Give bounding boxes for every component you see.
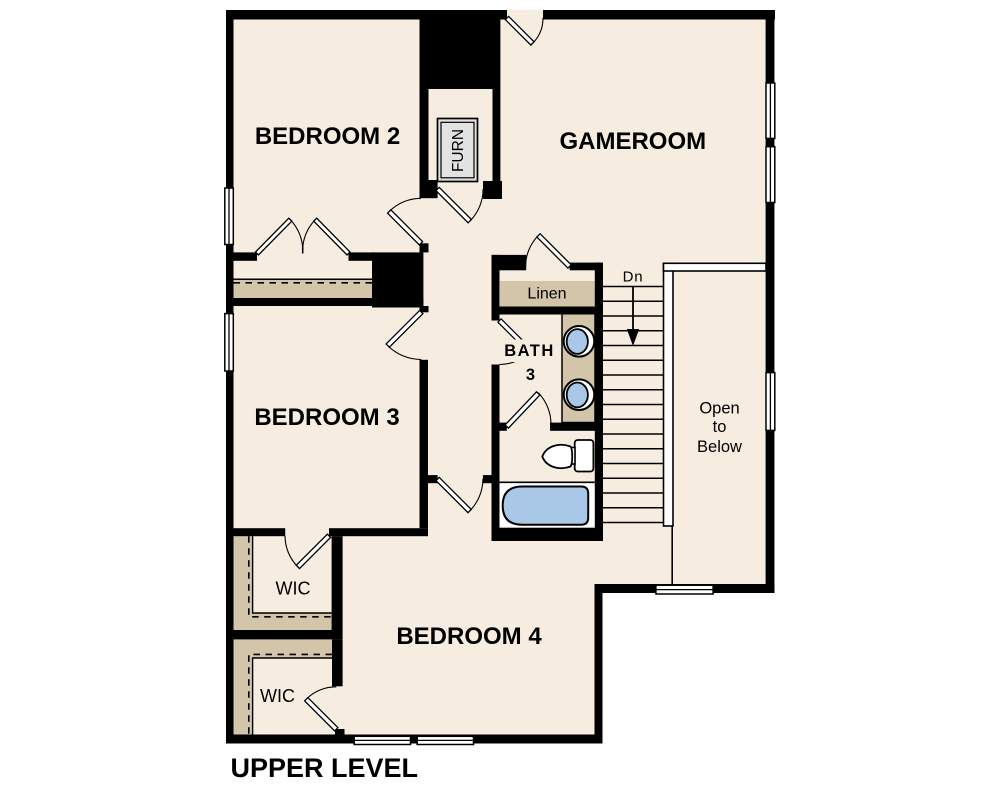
svg-text:WIC: WIC xyxy=(276,579,311,599)
svg-text:Linen: Linen xyxy=(527,286,566,303)
svg-text:Open: Open xyxy=(699,400,739,418)
svg-text:FURN: FURN xyxy=(450,129,467,172)
svg-text:UPPER LEVEL: UPPER LEVEL xyxy=(231,753,419,783)
svg-text:BEDROOM 2: BEDROOM 2 xyxy=(255,123,400,150)
svg-text:Dn: Dn xyxy=(623,269,644,286)
svg-text:3: 3 xyxy=(526,366,535,384)
svg-text:to: to xyxy=(713,418,727,436)
svg-text:Below: Below xyxy=(697,438,742,456)
svg-text:BATH: BATH xyxy=(504,342,555,360)
svg-text:BEDROOM 3: BEDROOM 3 xyxy=(254,404,399,431)
svg-text:WIC: WIC xyxy=(260,686,295,706)
svg-text:BEDROOM 4: BEDROOM 4 xyxy=(396,623,542,650)
svg-text:GAMEROOM: GAMEROOM xyxy=(559,128,706,155)
